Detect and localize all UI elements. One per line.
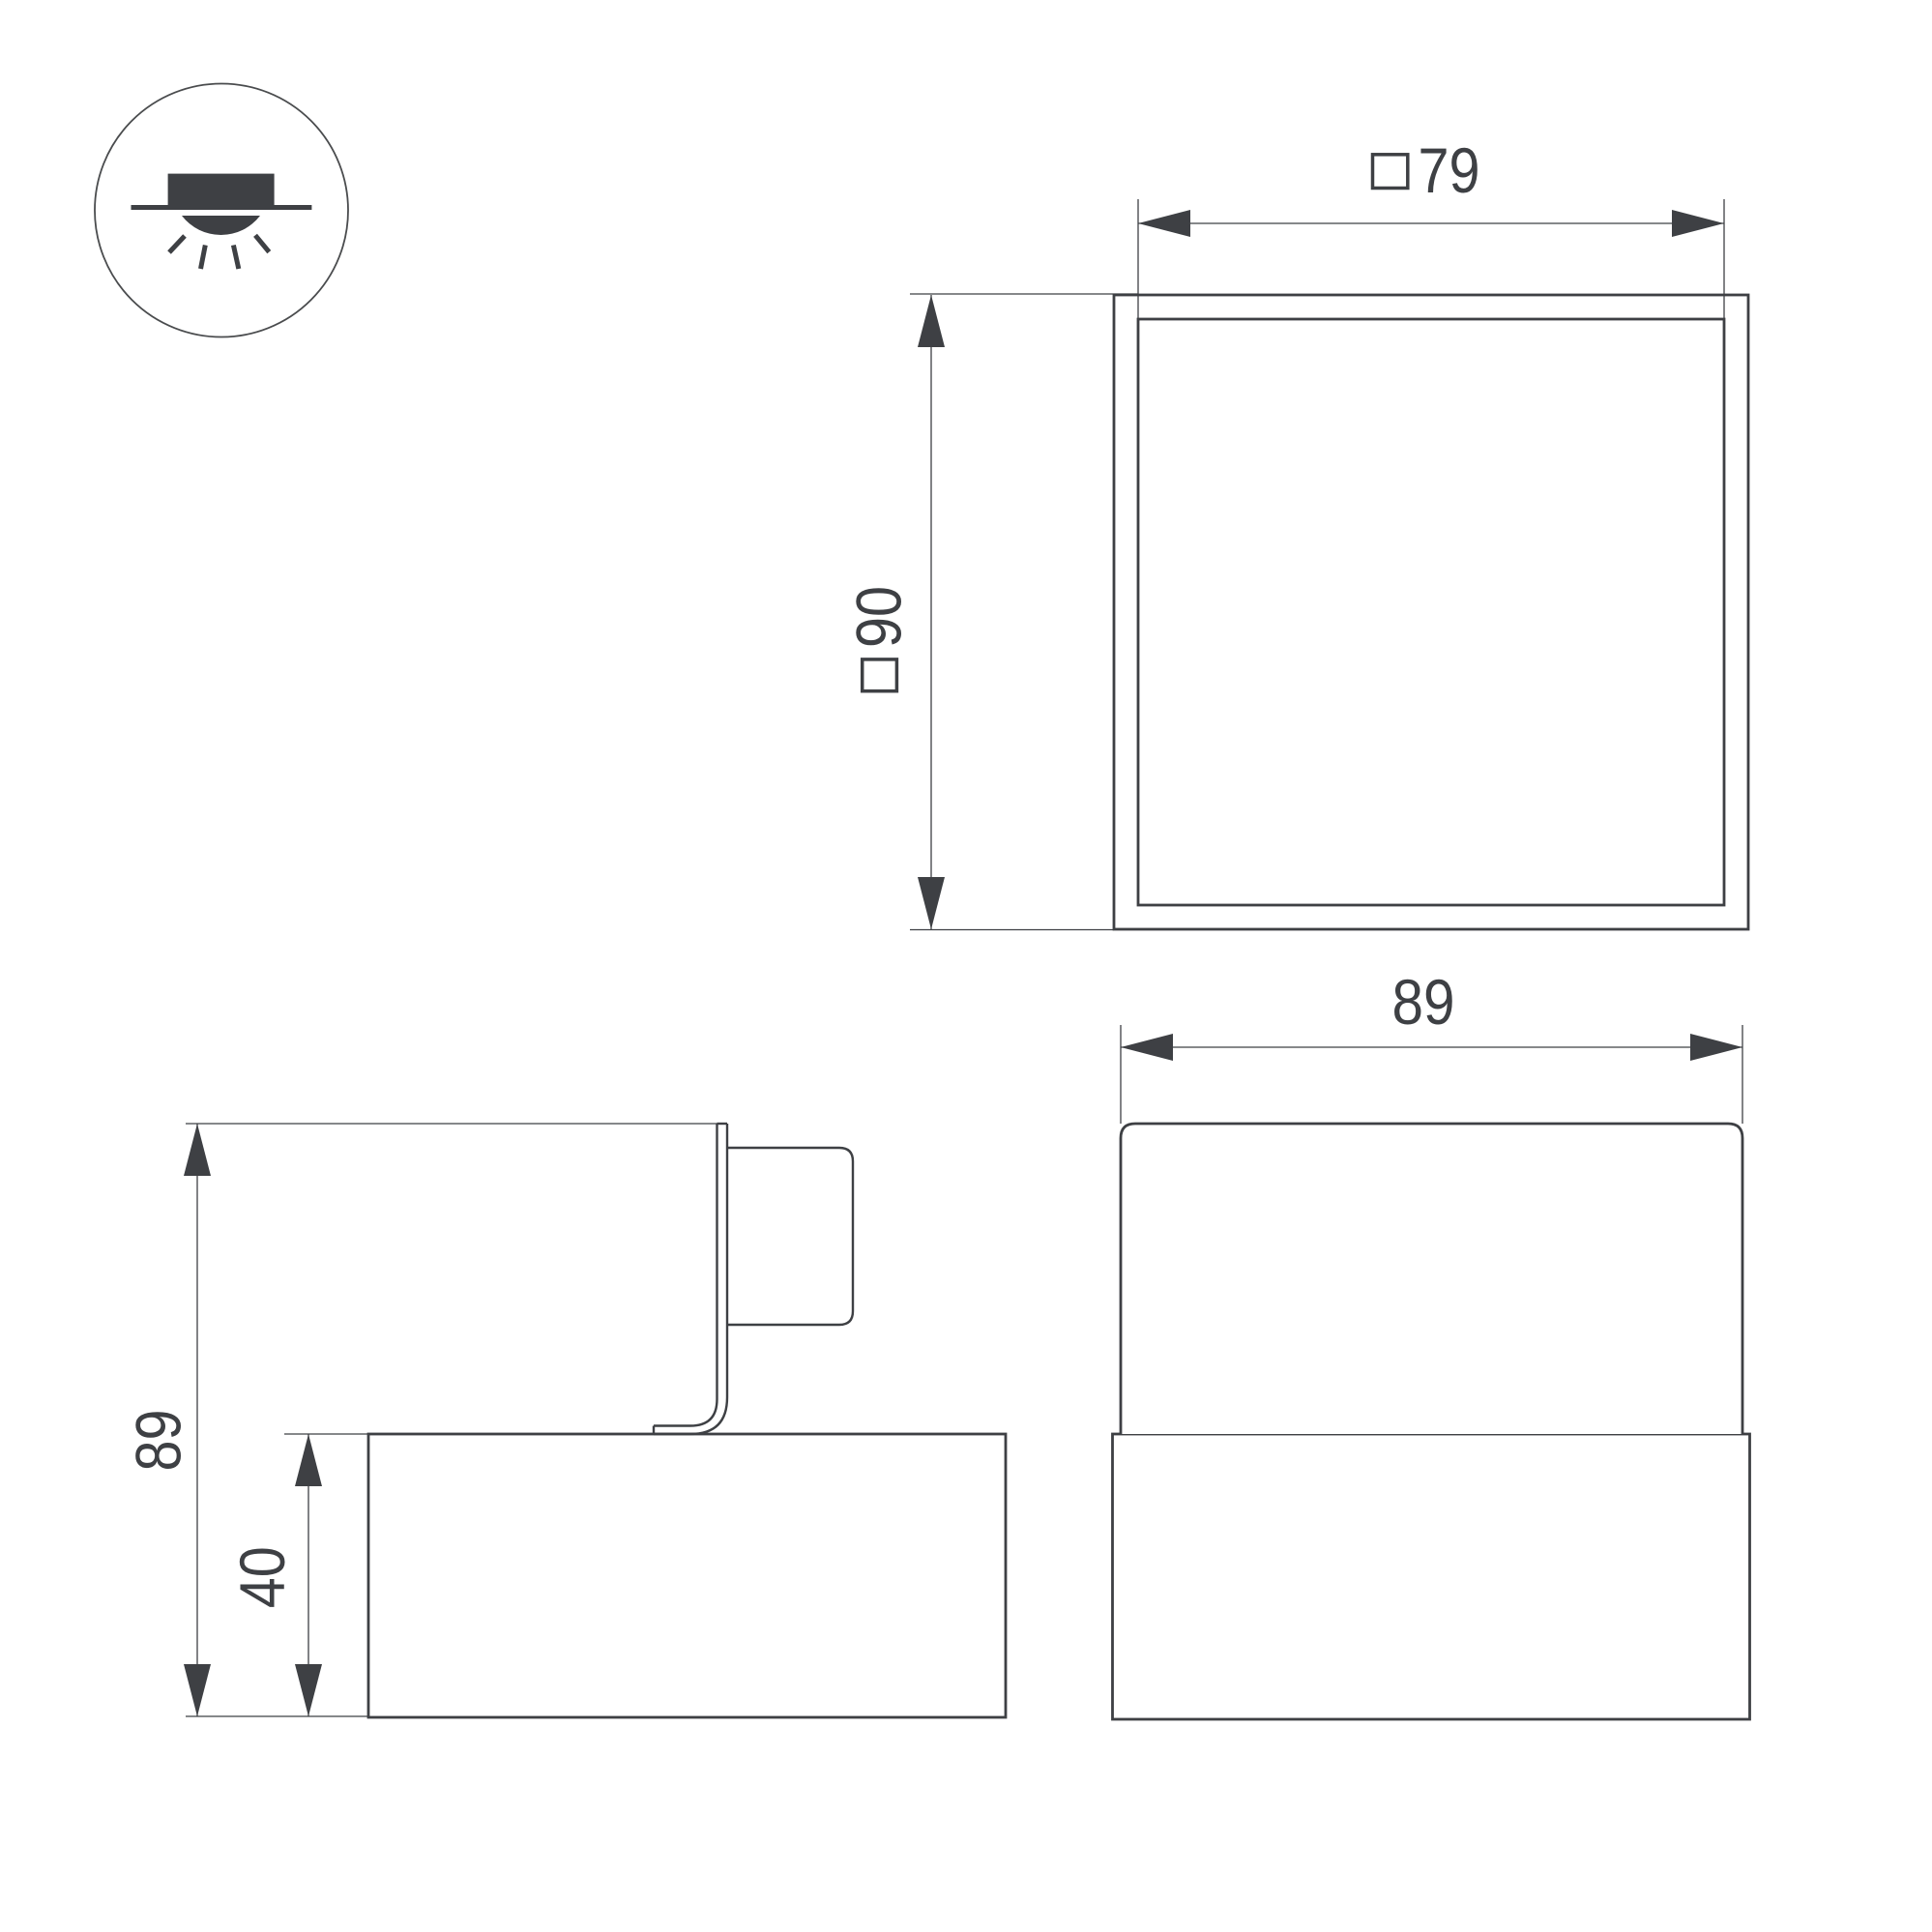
- svg-text:79: 79: [1419, 134, 1480, 206]
- svg-text:40: 40: [226, 1546, 298, 1608]
- svg-text:90: 90: [843, 586, 915, 648]
- svg-text:89: 89: [1392, 966, 1455, 1038]
- svg-text:89: 89: [123, 1410, 194, 1472]
